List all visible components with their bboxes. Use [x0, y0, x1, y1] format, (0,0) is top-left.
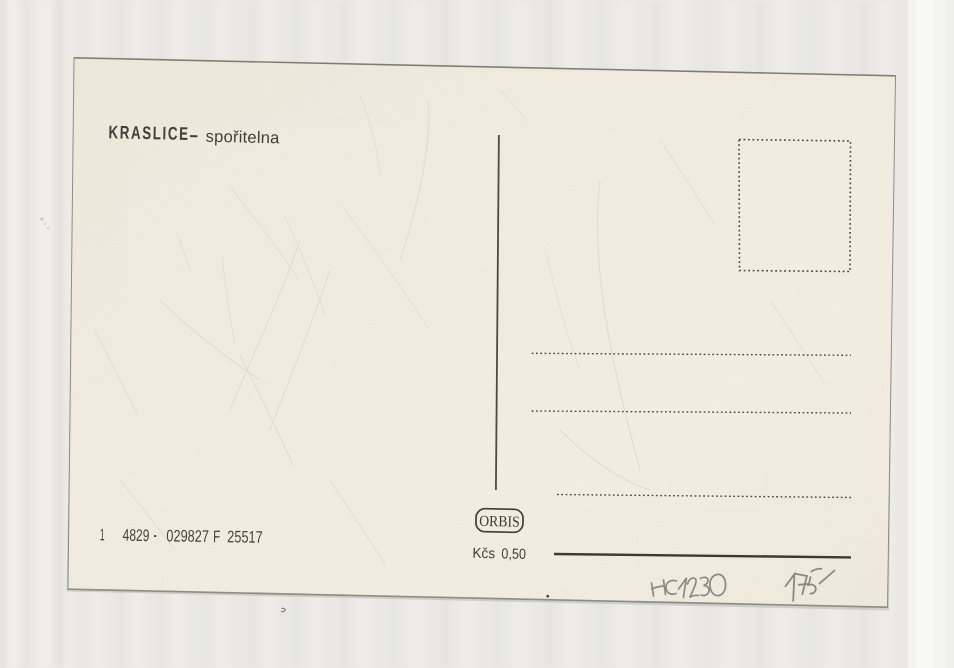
svg-text:4829: 4829	[122, 526, 149, 545]
svg-text:KRASLICE: KRASLICE	[108, 122, 190, 144]
svg-text:029827: 029827	[166, 526, 209, 546]
svg-text:0,50: 0,50	[501, 546, 526, 563]
svg-text:1: 1	[100, 525, 105, 544]
svg-text:spořitelna: spořitelna	[205, 127, 280, 148]
svg-text:F: F	[213, 527, 220, 546]
svg-text:ORBIS: ORBIS	[479, 513, 520, 531]
svg-text:Kčs: Kčs	[472, 546, 495, 562]
svg-text:25517: 25517	[227, 527, 263, 547]
